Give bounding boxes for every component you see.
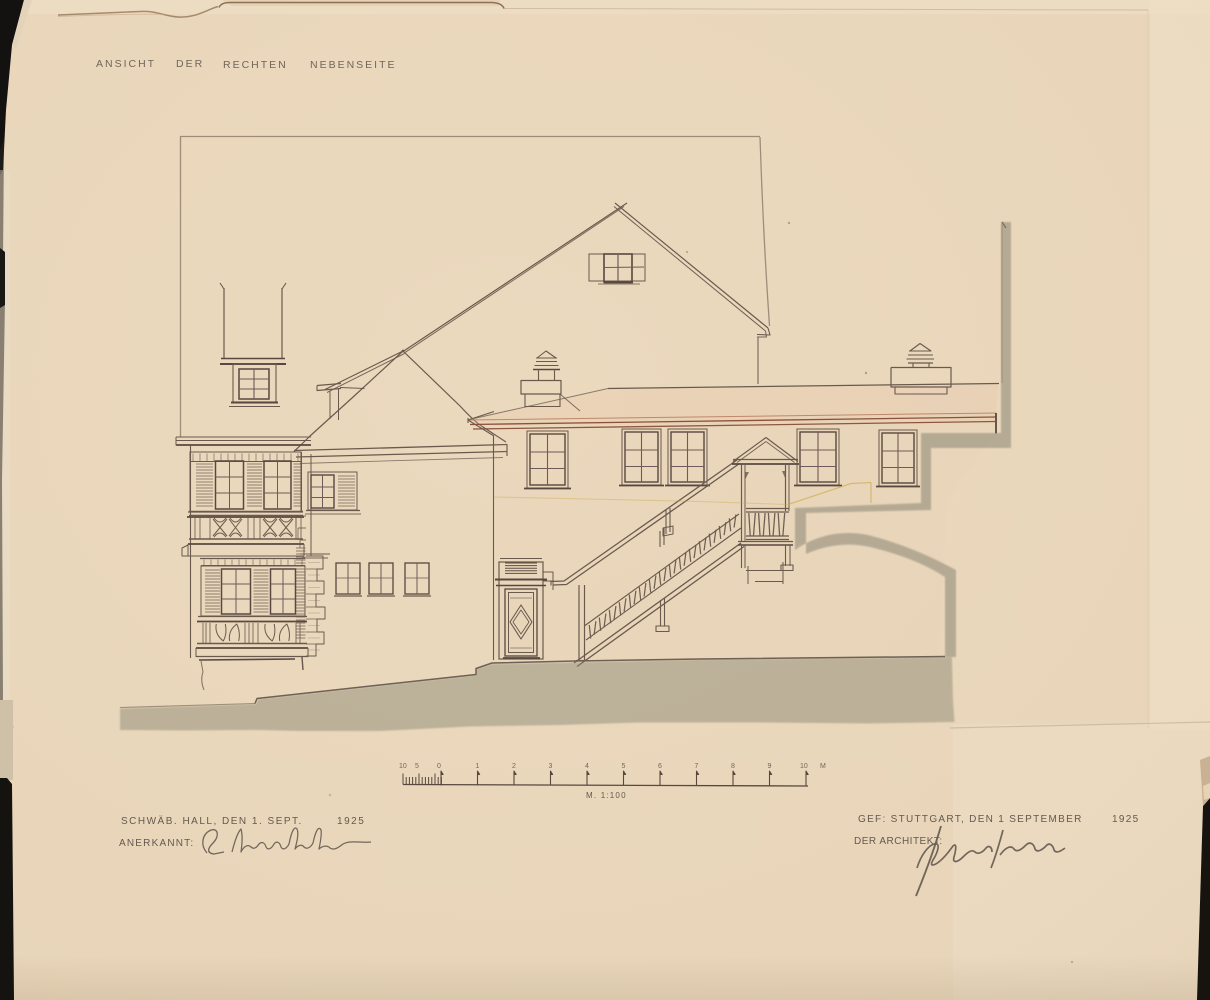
svg-text:10: 10 (399, 763, 407, 770)
svg-text:3: 3 (549, 763, 553, 770)
svg-text:DER ARCHITEKT:: DER ARCHITEKT: (854, 836, 943, 847)
svg-text:8: 8 (731, 763, 735, 770)
svg-text:SCHWÄB. HALL, DEN 1. SEPT.: SCHWÄB. HALL, DEN 1. SEPT. 1925 (121, 815, 365, 827)
svg-text:0: 0 (437, 763, 441, 770)
svg-text:ANSICHT: ANSICHT (96, 58, 156, 70)
svg-text:5: 5 (415, 763, 419, 770)
svg-text:9: 9 (768, 763, 772, 770)
svg-text:2: 2 (512, 763, 516, 770)
svg-text:ANERKANNT:: ANERKANNT: (119, 838, 194, 849)
svg-text:DER: DER (176, 58, 204, 70)
svg-text:GEF: STUTTGART, DEN 1 SEPTEMBE: GEF: STUTTGART, DEN 1 SEPTEMBER (858, 814, 1083, 825)
svg-text:1925: 1925 (1112, 814, 1139, 825)
svg-text:5: 5 (622, 763, 626, 770)
svg-text:M. 1:100: M. 1:100 (586, 791, 627, 800)
svg-text:RECHTEN: RECHTEN (223, 59, 288, 71)
svg-text:6: 6 (658, 763, 662, 770)
svg-text:1: 1 (476, 763, 480, 770)
svg-text:NEBENSEITE: NEBENSEITE (310, 59, 397, 71)
svg-text:M: M (820, 763, 826, 770)
svg-text:4: 4 (585, 763, 589, 770)
svg-text:10: 10 (800, 763, 808, 770)
svg-text:7: 7 (695, 763, 699, 770)
